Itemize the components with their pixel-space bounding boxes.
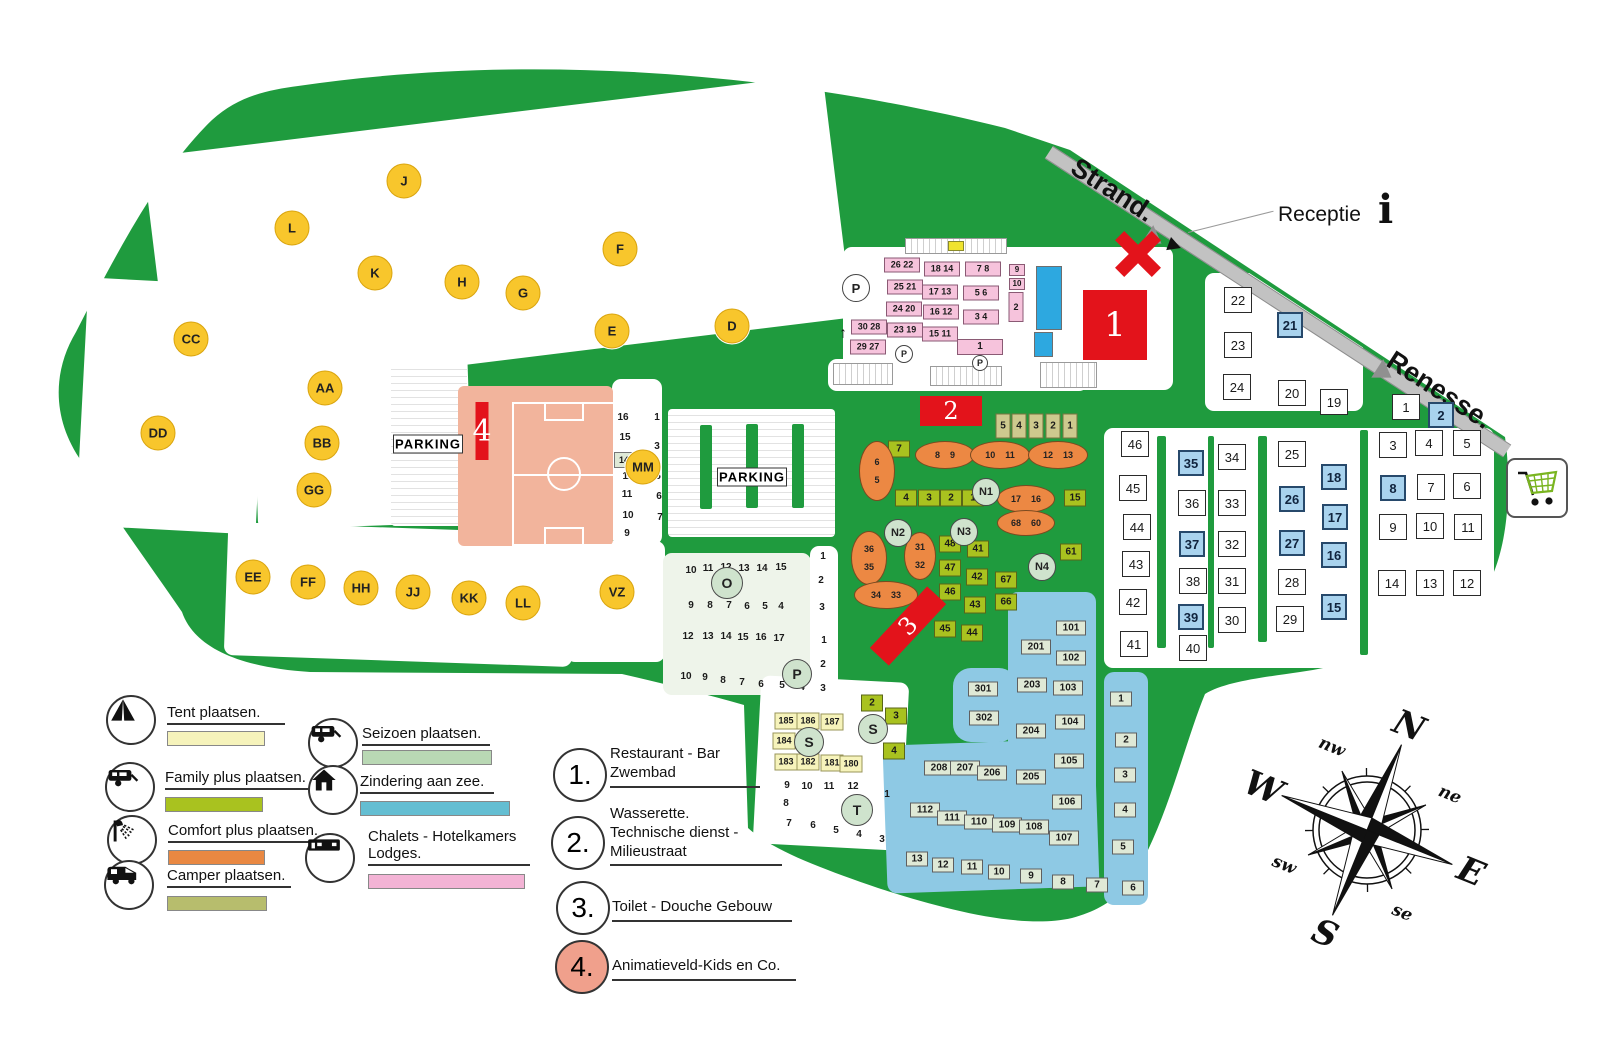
compass-rose: NESWneseswnw <box>1232 690 1502 970</box>
legend-color-swatch <box>368 874 525 889</box>
parking-circle: P <box>842 274 870 302</box>
swimming-pool <box>1036 266 1062 330</box>
hedge <box>1208 436 1214 648</box>
zone-circle-GG: GG <box>297 473 332 508</box>
legend-item-label: Seizoen plaatsen. <box>362 725 490 746</box>
zone-circle-F: F <box>603 232 638 267</box>
plot-3 4: 3 4 <box>963 310 999 325</box>
hedge <box>1157 436 1166 648</box>
plot-24: 24 <box>1223 374 1251 400</box>
plot-15: 15 <box>619 433 630 443</box>
legend-number-circle: 2. <box>551 816 605 870</box>
zone-circle-CC: CC <box>174 322 209 357</box>
plot-5: 5 <box>1112 840 1134 855</box>
plot-8: 8 <box>707 601 713 611</box>
receptie-label: Receptie <box>1278 203 1361 227</box>
oval-number: 9 <box>950 450 955 460</box>
plot-13: 13 <box>1416 570 1444 596</box>
legend-number: 2. <box>566 827 589 859</box>
plot-206: 206 <box>977 766 1007 781</box>
plot-207: 207 <box>950 761 980 776</box>
plot-34: 34 <box>1218 444 1246 470</box>
plot-2: 2 <box>861 695 883 712</box>
plot-15: 15 <box>775 563 786 573</box>
plot-28: 28 <box>1278 569 1306 595</box>
plot-8: 8 <box>1052 875 1074 890</box>
plot-17 13: 17 13 <box>922 285 958 300</box>
plot-7: 7 <box>739 678 745 688</box>
zone-circle-L: L <box>275 211 310 246</box>
swimming-pool <box>1034 332 1053 357</box>
legend-facility-label: Animatieveld-Kids en Co. <box>612 957 796 981</box>
plot-1: 1 <box>821 636 827 646</box>
plot-302: 302 <box>969 711 999 726</box>
comfort-oval-8-9: 89 <box>915 441 975 469</box>
oval-number: 35 <box>864 562 874 572</box>
plot-6: 6 <box>758 680 764 690</box>
legend-item-label: Comfort plus plaatsen. <box>168 822 323 843</box>
plot-18 14: 18 14 <box>924 262 960 277</box>
plot-3: 3 <box>885 708 907 725</box>
plot-5: 5 <box>833 826 839 836</box>
plot-16 12: 16 12 <box>923 305 959 320</box>
plot-44: 44 <box>1123 514 1151 540</box>
plot-3: 3 <box>918 490 940 507</box>
plot-6: 6 <box>656 492 662 502</box>
plot-205: 205 <box>1016 770 1046 785</box>
plot-10: 10 <box>622 511 633 521</box>
plot-7: 7 <box>1086 878 1108 893</box>
plot-67: 67 <box>995 572 1017 589</box>
plot-104: 104 <box>1055 715 1085 730</box>
plot-7: 7 <box>1417 474 1445 500</box>
plot-180: 180 <box>840 756 863 773</box>
plot-17: 17 <box>773 634 784 644</box>
plot-1: 1 <box>1110 692 1132 707</box>
plot-110: 110 <box>964 815 994 830</box>
plot-42: 42 <box>966 569 988 586</box>
plot-43: 43 <box>1122 551 1150 577</box>
plot-4: 4 <box>778 602 784 612</box>
plot-5 6: 5 6 <box>963 286 999 301</box>
oval-number: 60 <box>1031 518 1041 528</box>
shower-icon-circle <box>107 815 157 865</box>
building-1: 1 <box>1083 290 1147 360</box>
plot-16: 16 <box>1321 542 1347 568</box>
plot-40: 40 <box>1179 635 1207 661</box>
parking-divider <box>792 424 804 508</box>
soccer-goal-box <box>544 402 584 421</box>
plot-12: 12 <box>932 858 954 873</box>
compass-direction-N: N <box>1386 701 1433 751</box>
zone-circle-J: J <box>387 164 422 199</box>
legend-item-label: Tent plaatsen. <box>167 704 285 725</box>
plot-30 28: 30 28 <box>851 320 887 335</box>
plot-32: 32 <box>1218 531 1246 557</box>
plot-14: 14 <box>756 564 767 574</box>
tent-icon-circle <box>106 695 156 745</box>
oval-number: 13 <box>1063 450 1073 460</box>
campsite-map: Strand. Renesse. Receptie i PARKING PARK… <box>0 0 1599 1062</box>
plot-187: 187 <box>821 714 844 731</box>
oval-number: 36 <box>864 544 874 554</box>
plot-27: 27 <box>1279 530 1305 556</box>
plot-6: 6 <box>1122 881 1144 896</box>
plot-45: 45 <box>1119 475 1147 501</box>
compass-direction-sw: sw <box>1268 851 1300 879</box>
plot-2: 2 <box>940 490 962 507</box>
plot-3: 3 <box>1029 414 1044 439</box>
parking-circle: P <box>972 355 988 371</box>
plot-201: 201 <box>1021 640 1051 655</box>
plot-9: 9 <box>1379 514 1407 540</box>
plot-17: 17 <box>1322 504 1348 530</box>
parking-label-2: PARKING <box>717 468 787 487</box>
area-circle-N3: N3 <box>950 518 978 546</box>
comfort-oval-10-11: 1011 <box>970 441 1030 469</box>
shopping-cart-icon <box>1508 460 1566 516</box>
plot-3: 3 <box>1114 768 1136 783</box>
plot-5: 5 <box>762 602 768 612</box>
plot-33: 33 <box>1218 490 1246 516</box>
plot-11: 11 <box>1454 514 1482 540</box>
plot-7: 7 <box>726 601 732 611</box>
caravan-icon-circle <box>105 762 155 812</box>
plot-29 27: 29 27 <box>850 340 886 355</box>
plot-66: 66 <box>995 594 1017 611</box>
storage-row <box>833 363 893 385</box>
plot-11: 11 <box>622 490 633 500</box>
zone-circle-BB: BB <box>305 426 340 461</box>
legend-color-swatch <box>360 801 510 816</box>
plot-25: 25 <box>1278 441 1306 467</box>
plot-15 11: 15 11 <box>922 327 958 342</box>
legend-number-circle: 3. <box>556 881 610 935</box>
plot-26: 26 <box>1279 486 1305 512</box>
hedge <box>1360 430 1368 655</box>
yellow-service-box <box>948 241 964 251</box>
zindering-zone <box>1104 672 1148 905</box>
area-circle-O: O <box>711 567 743 599</box>
plot-8: 8 <box>783 799 789 809</box>
plot-106: 106 <box>1052 795 1082 810</box>
zone-circle-KK: KK <box>452 581 487 616</box>
plot-1: 1 <box>1063 414 1078 439</box>
plot-25 21: 25 21 <box>887 280 923 295</box>
oval-number: 16 <box>1031 494 1041 504</box>
plot-9: 9 <box>1020 869 1042 884</box>
plot-5: 5 <box>996 414 1011 439</box>
plot-10: 10 <box>680 672 691 682</box>
plot-9: 9 <box>688 601 694 611</box>
plot-112: 112 <box>910 803 940 818</box>
zone-circle-H: H <box>445 265 480 300</box>
compass-direction-se: se <box>1388 899 1415 926</box>
legend-color-swatch <box>165 797 263 812</box>
plot-1: 1 <box>884 790 890 800</box>
comfort-oval-17-16: 1716 <box>997 485 1055 513</box>
plot-19: 19 <box>1320 389 1348 415</box>
plot-45: 45 <box>934 621 956 638</box>
plot-44: 44 <box>961 625 983 642</box>
legend-number: 4. <box>570 951 593 983</box>
plot-13: 13 <box>906 852 928 867</box>
legend-item-label: Family plus plaatsen. <box>165 769 317 790</box>
parking-divider <box>746 424 758 508</box>
area-circle-N2: N2 <box>884 519 912 547</box>
plot-3: 3 <box>1379 432 1407 458</box>
plot-43: 43 <box>964 597 986 614</box>
oval-number: 11 <box>1005 450 1015 460</box>
lodge-icon-circle <box>305 833 355 883</box>
oval-number: 8 <box>935 450 940 460</box>
plot-10: 10 <box>801 782 812 792</box>
plot-21: 21 <box>1277 312 1303 338</box>
zone-circle-K: K <box>358 256 393 291</box>
comfort-oval-36-35: 3635 <box>851 531 887 585</box>
zone-circle-LL: LL <box>506 586 541 621</box>
legend-facility-label: Restaurant - Bar Zwembad <box>610 745 760 788</box>
plot-109: 109 <box>992 818 1022 833</box>
plot-35: 35 <box>1178 450 1204 476</box>
plot-16: 16 <box>755 633 766 643</box>
oval-number: 32 <box>915 560 925 570</box>
plot-10: 10 <box>988 865 1010 880</box>
plot-41: 41 <box>1120 631 1148 657</box>
plot-1: 1 <box>654 413 660 423</box>
plot-10: 10 <box>1416 513 1444 539</box>
zone-circle-G: G <box>506 276 541 311</box>
plot-36: 36 <box>1178 490 1206 516</box>
plot-26 22: 26 22 <box>884 258 920 273</box>
plot-4: 4 <box>883 743 905 760</box>
zone-circle-MM: MM <box>626 450 661 485</box>
area-circle-N1: N1 <box>972 478 1000 506</box>
plot-9: 9 <box>1009 264 1025 276</box>
plot-46: 46 <box>939 584 961 601</box>
plot-10: 10 <box>685 566 696 576</box>
plot-20: 20 <box>1278 380 1306 406</box>
zone-circle-D: D <box>715 309 750 344</box>
plot-6: 6 <box>810 821 816 831</box>
plot-301: 301 <box>968 682 998 697</box>
plot-107: 107 <box>1049 831 1079 846</box>
building-4: 4 <box>476 402 489 460</box>
plot-4: 4 <box>895 490 917 507</box>
plot-61: 61 <box>1060 544 1082 561</box>
legend-item-label: Camper plaatsen. <box>167 867 291 888</box>
plot-22: 22 <box>1224 287 1252 313</box>
plot-4: 4 <box>1415 430 1443 456</box>
plot-29: 29 <box>1276 606 1304 632</box>
zindering-zone <box>953 668 1017 742</box>
oval-number: 17 <box>1011 494 1021 504</box>
plot-9: 9 <box>624 529 630 539</box>
legend-color-swatch <box>167 896 267 911</box>
plot-2: 2 <box>1115 733 1137 748</box>
legend-item-label: Chalets - Hotelkamers Lodges. <box>368 828 530 866</box>
legend-facility-label: Toilet - Douche Gebouw <box>612 898 792 922</box>
plot-46: 46 <box>1121 431 1149 457</box>
zone-circle-HH: HH <box>344 571 379 606</box>
plot-4: 4 <box>1012 414 1027 439</box>
parking-label-1: PARKING <box>393 435 463 454</box>
plot-111: 111 <box>937 811 967 826</box>
storage-row <box>1040 362 1097 388</box>
plot-11: 11 <box>703 564 714 574</box>
compass-direction-E: E <box>1450 848 1491 896</box>
legend-item-label: Zindering aan zee. <box>360 773 494 794</box>
plot-13: 13 <box>702 632 713 642</box>
plot-42: 42 <box>1119 589 1147 615</box>
hedge <box>1258 436 1267 642</box>
plot-7: 7 <box>657 513 663 523</box>
plot-3: 3 <box>819 603 825 613</box>
plot-38: 38 <box>1179 568 1207 594</box>
compass-direction-S: S <box>1306 911 1344 957</box>
oval-number: 10 <box>985 450 995 460</box>
plot-47: 47 <box>939 560 961 577</box>
plot-203: 203 <box>1017 678 1047 693</box>
legend-color-swatch <box>167 731 265 746</box>
plot-18: 18 <box>1321 464 1347 490</box>
building-2: 2 <box>920 396 982 426</box>
plot-5: 5 <box>1453 430 1481 456</box>
plot-15: 15 <box>737 633 748 643</box>
plot-4: 4 <box>856 830 862 840</box>
compass-direction-W: W <box>1238 762 1291 814</box>
plot-8: 8 <box>720 676 726 686</box>
legend-facility-label: Wasserette. Technische dienst - Milieust… <box>610 805 782 866</box>
oval-number: 68 <box>1011 518 1021 528</box>
plot-9: 9 <box>784 781 790 791</box>
plot-183: 183 <box>775 754 798 771</box>
plot-101: 101 <box>1056 621 1086 636</box>
plot-204: 204 <box>1016 724 1046 739</box>
plot-12: 12 <box>847 782 858 792</box>
oval-number: 31 <box>915 542 925 552</box>
plot-15: 15 <box>1321 594 1347 620</box>
plot-39: 39 <box>1178 604 1204 630</box>
plot-10: 10 <box>1009 278 1025 290</box>
comfort-oval-6-5: 65 <box>859 441 895 501</box>
plot-103: 103 <box>1053 681 1083 696</box>
plot-185: 185 <box>775 713 798 730</box>
plot-2: 2 <box>818 576 824 586</box>
zone-circle-JJ: JJ <box>396 575 431 610</box>
plot-2: 2 <box>1009 292 1024 322</box>
legend-number: 1. <box>568 759 591 791</box>
plot-7: 7 <box>786 819 792 829</box>
area-circle-P: P <box>782 659 812 689</box>
plot-1: 1 <box>1392 394 1420 420</box>
caravan-icon-circle <box>308 718 358 768</box>
plot-12: 12 <box>682 632 693 642</box>
plot-14: 14 <box>1378 570 1406 596</box>
soccer-field <box>512 402 616 546</box>
compass-direction-ne: ne <box>1435 781 1464 808</box>
plot-6: 6 <box>744 602 750 612</box>
plot-23: 23 <box>1224 332 1252 358</box>
plot-2: 2 <box>820 660 826 670</box>
entrance-arrow-icon: ↑ <box>839 325 847 342</box>
camper-icon-circle <box>104 860 154 910</box>
zone-circle-E: E <box>595 314 630 349</box>
zone-circle-DD: DD <box>141 416 176 451</box>
parking-circle: P <box>895 345 913 363</box>
legend-color-swatch <box>168 850 265 865</box>
oval-number: 33 <box>891 590 901 600</box>
shopping-cart-button[interactable] <box>1506 458 1568 518</box>
plot-15: 15 <box>1064 490 1086 507</box>
plot-105: 105 <box>1054 754 1084 769</box>
legend-color-swatch <box>362 750 492 765</box>
parking-divider <box>700 425 712 509</box>
plot-2: 2 <box>1428 402 1454 428</box>
plot-3: 3 <box>879 835 885 845</box>
plot-2: 2 <box>1046 414 1061 439</box>
plot-7 8: 7 8 <box>965 262 1001 277</box>
plot-23 19: 23 19 <box>887 323 923 338</box>
legend-number: 3. <box>571 892 594 924</box>
area-circle-S: S <box>858 714 888 744</box>
zone-circle-EE: EE <box>236 560 271 595</box>
area-circle-S: S <box>794 727 824 757</box>
oval-number: 12 <box>1043 450 1053 460</box>
oval-number: 6 <box>874 457 879 467</box>
soccer-center-circle <box>547 457 581 491</box>
plot-3: 3 <box>820 684 826 694</box>
plot-16: 16 <box>617 413 628 423</box>
storage-row <box>930 366 1002 386</box>
area-circle-N4: N4 <box>1028 553 1056 581</box>
house-icon-circle <box>308 765 358 815</box>
soccer-goal-box <box>544 527 584 546</box>
plot-37: 37 <box>1179 531 1205 557</box>
plot-184: 184 <box>773 733 796 750</box>
info-icon: i <box>1378 186 1393 233</box>
plot-102: 102 <box>1056 651 1086 666</box>
plot-108: 108 <box>1019 820 1049 835</box>
plot-9: 9 <box>702 673 708 683</box>
comfort-oval-68-60: 6860 <box>997 510 1055 536</box>
compass-direction-nw: nw <box>1316 733 1350 762</box>
plot-8: 8 <box>1380 475 1406 501</box>
plot-3: 3 <box>654 442 660 452</box>
zone-circle-VZ: VZ <box>600 575 635 610</box>
plot-11: 11 <box>824 782 835 792</box>
plot-11: 11 <box>961 860 983 875</box>
plot-31: 31 <box>1218 568 1246 594</box>
zone-circle-FF: FF <box>291 565 326 600</box>
plot-1: 1 <box>820 552 826 562</box>
zone-circle-AA: AA <box>308 371 343 406</box>
legend-number-circle: 4. <box>555 940 609 994</box>
comfort-oval-12-13: 1213 <box>1028 441 1088 469</box>
plot-13: 13 <box>738 564 749 574</box>
plot-14: 14 <box>720 632 731 642</box>
plot-12: 12 <box>1453 570 1481 596</box>
plot-4: 4 <box>1114 803 1136 818</box>
plot-6: 6 <box>1453 473 1481 499</box>
plot-24 20: 24 20 <box>886 302 922 317</box>
oval-number: 34 <box>871 590 881 600</box>
oval-number: 5 <box>874 475 879 485</box>
legend-number-circle: 1. <box>553 748 607 802</box>
plot-30: 30 <box>1218 607 1246 633</box>
plot-area-west <box>76 277 269 534</box>
plot-1: 1 <box>957 339 1003 355</box>
